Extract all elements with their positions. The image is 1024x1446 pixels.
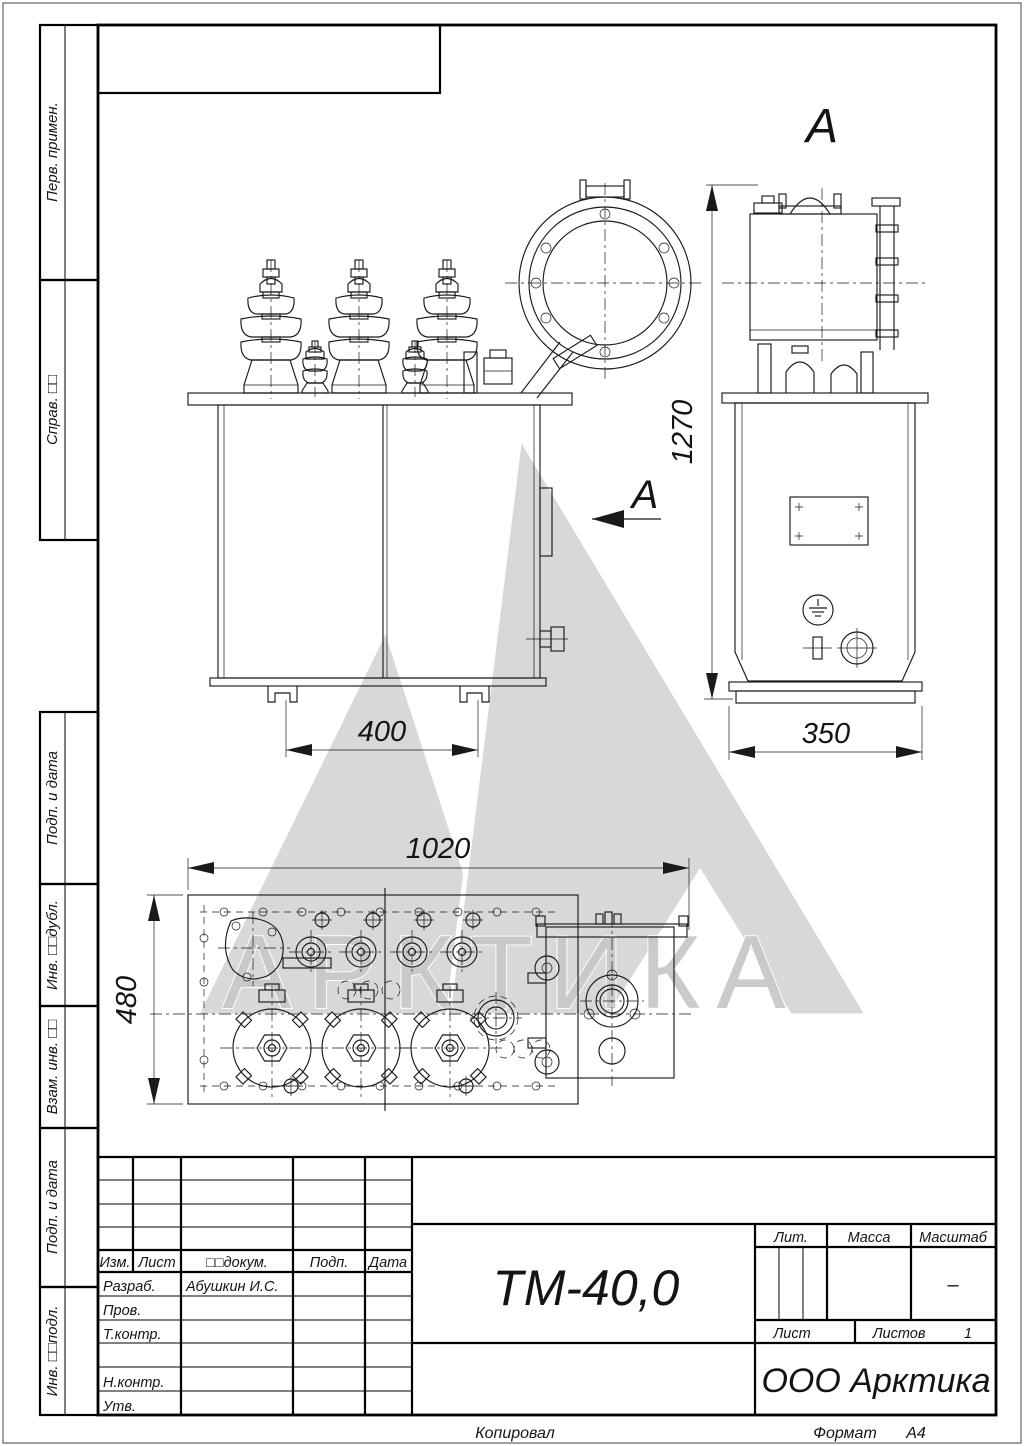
dim-400-label: 400 — [358, 716, 406, 748]
dim-1020-label: 1020 — [406, 833, 471, 865]
dim-480-label: 480 — [111, 976, 143, 1024]
footer-strip: Копировал Формат А4 — [475, 1425, 926, 1442]
row-prov-label: Пров. — [103, 1303, 141, 1319]
listov-value: 1 — [964, 1326, 972, 1342]
ground-symbol — [803, 595, 833, 625]
list-label: Лист — [772, 1326, 810, 1342]
drawing-canvas: АРКТИКА — [0, 0, 1024, 1446]
format-label: Формат — [813, 1425, 877, 1442]
col-data: Дата — [367, 1255, 407, 1271]
view-a-arrow-label: А — [630, 473, 659, 517]
row-utv-label: Утв. — [102, 1399, 136, 1415]
expansion-tank-front — [505, 180, 705, 398]
dim-1270-label: 1270 — [667, 400, 699, 465]
stamp-podp-data-2: Подп. и дата — [44, 1160, 61, 1254]
format-value: А4 — [905, 1425, 926, 1442]
title-block: Изм. Лист □□докум. Подп. Дата Разраб. Аб… — [98, 1157, 996, 1415]
margin-stamps: Перв. примен. Справ. □□ Подп. и дата Инв… — [40, 25, 98, 1415]
masshtab-value: – — [946, 1274, 959, 1296]
massa-label: Масса — [848, 1230, 891, 1246]
stamp-podp-data-1: Подп. и дата — [44, 751, 61, 845]
designation: ТМ-40,0 — [493, 1260, 680, 1316]
arktika-watermark-logo: АРКТИКА — [196, 436, 868, 1031]
row-razrab-name: Абушкин И.С. — [185, 1279, 278, 1295]
stamp-perv-primen: Перв. примен. — [44, 102, 61, 202]
row-razrab-label: Разраб. — [103, 1279, 155, 1295]
stamp-inv-podl: Инв. □□подл. — [44, 1306, 61, 1397]
col-list: Лист — [137, 1255, 175, 1271]
view-a-arrow: А — [592, 473, 661, 528]
dim-350-label: 350 — [802, 718, 850, 750]
watermark-text: АРКТИКА — [222, 915, 802, 1031]
view-a-label: А — [803, 100, 838, 153]
drawing-sheet: АРКТИКА — [0, 0, 1024, 1446]
top-left-stamp-box — [98, 25, 440, 93]
masshtab-label: Масштаб — [919, 1230, 988, 1246]
lit-label: Лит. — [773, 1230, 808, 1246]
listov-label: Листов — [872, 1326, 926, 1342]
stamp-inv-dubl: Инв. □□дубл. — [44, 900, 61, 990]
col-podp: Подп. — [310, 1255, 349, 1271]
dimension-height: 1270 — [667, 185, 758, 699]
stamp-sprav: Справ. □□ — [44, 375, 61, 445]
dimension-side-base: 350 — [729, 706, 922, 760]
dimension-plan-width: 480 — [111, 895, 183, 1104]
row-tkontr-label: Т.контр. — [103, 1327, 162, 1343]
col-dokum: □□докум. — [206, 1255, 268, 1271]
expansion-tank-side — [722, 188, 928, 362]
kopiroval-label: Копировал — [475, 1425, 555, 1442]
side-view — [722, 188, 928, 703]
col-izm: Изм. — [100, 1255, 131, 1271]
company-name: ООО Арктика — [761, 1362, 990, 1400]
row-nkontr-label: Н.контр. — [103, 1375, 164, 1391]
stamp-vzam-inv: Взам. инв. □□ — [44, 1020, 61, 1115]
